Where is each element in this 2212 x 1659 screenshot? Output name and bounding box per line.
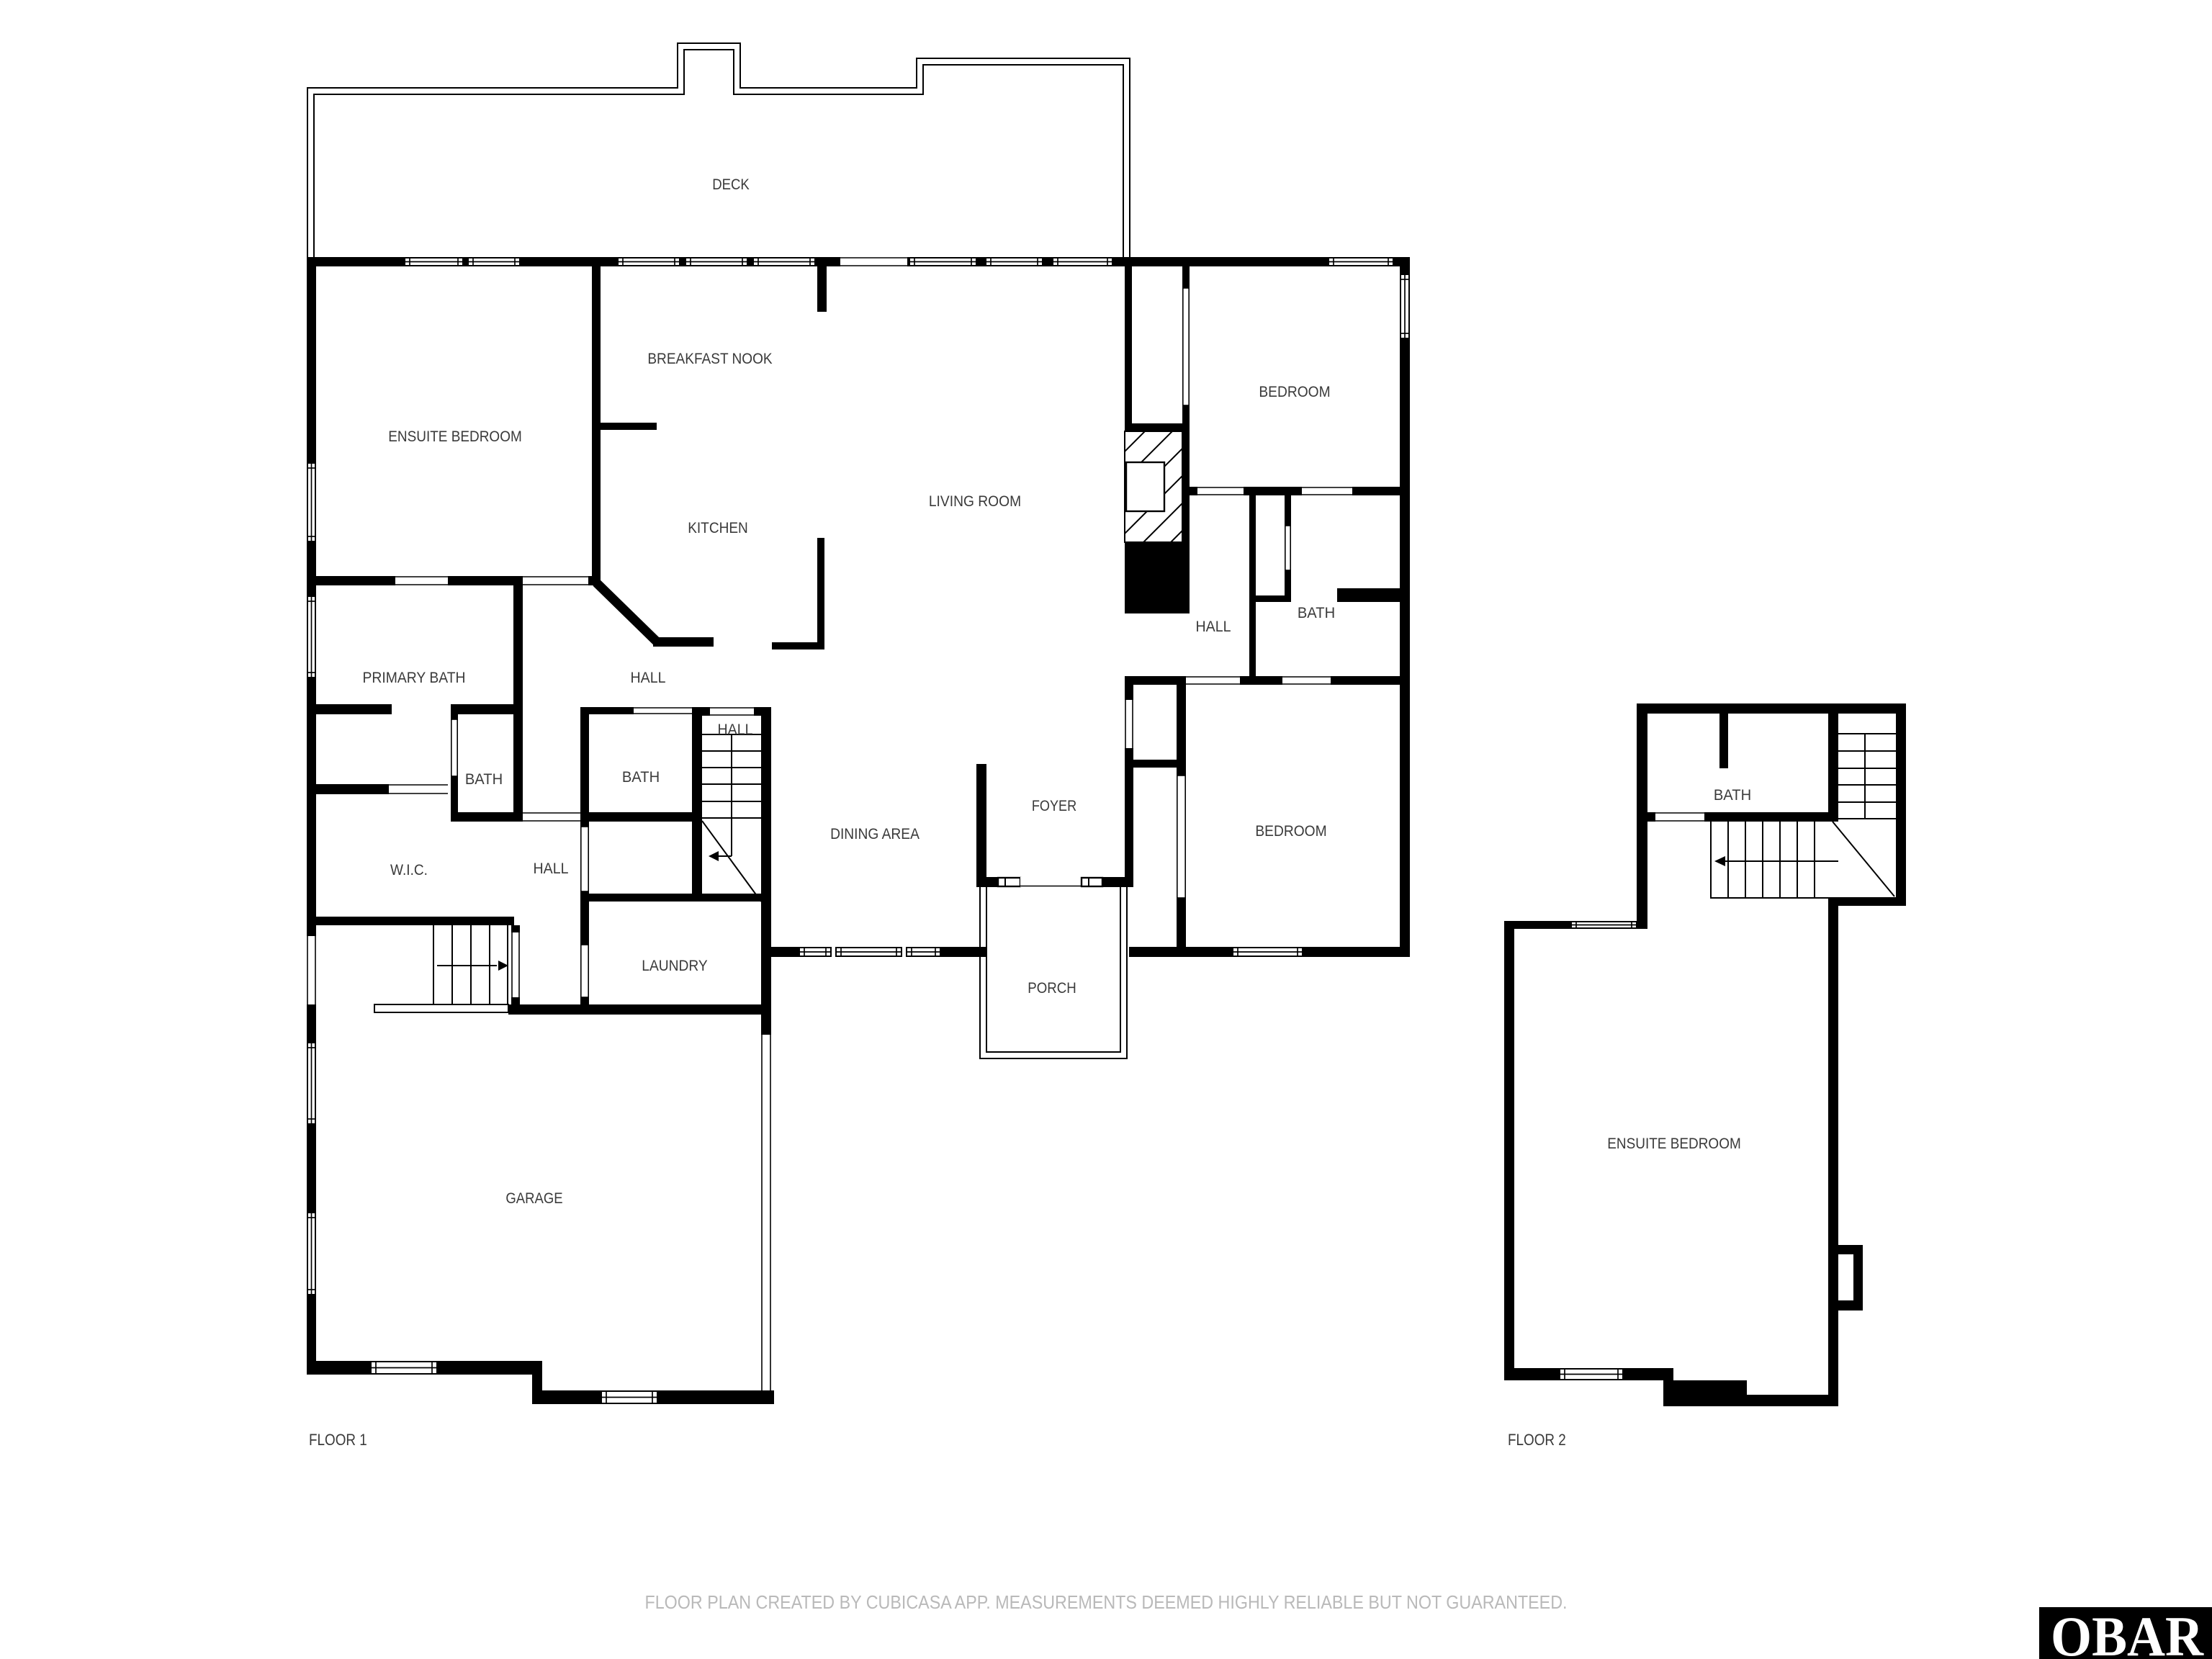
svg-text:DECK: DECK <box>712 176 750 193</box>
svg-text:ENSUITE BEDROOM: ENSUITE BEDROOM <box>388 428 522 445</box>
svg-text:BATH: BATH <box>622 769 660 786</box>
svg-text:FOYER: FOYER <box>1032 798 1076 814</box>
svg-text:BATH: BATH <box>1298 605 1335 621</box>
svg-text:FLOOR 2: FLOOR 2 <box>1508 1431 1566 1449</box>
svg-text:BEDROOM: BEDROOM <box>1259 384 1330 400</box>
svg-text:GARAGE: GARAGE <box>505 1190 562 1207</box>
svg-text:HALL: HALL <box>1196 619 1231 635</box>
svg-text:HALL: HALL <box>631 670 666 686</box>
svg-text:BATH: BATH <box>465 771 503 788</box>
svg-text:OBAR: OBAR <box>2051 1605 2205 1659</box>
svg-text:BREAKFAST NOOK: BREAKFAST NOOK <box>647 351 772 367</box>
svg-text:W.I.C.: W.I.C. <box>390 862 428 878</box>
svg-text:PRIMARY BATH: PRIMARY BATH <box>363 670 466 686</box>
svg-text:HALL: HALL <box>534 860 569 877</box>
svg-text:ENSUITE BEDROOM: ENSUITE BEDROOM <box>1607 1136 1741 1152</box>
svg-text:HALL: HALL <box>718 721 753 738</box>
svg-text:LAUNDRY: LAUNDRY <box>642 958 708 974</box>
svg-text:BEDROOM: BEDROOM <box>1255 823 1326 840</box>
svg-text:FLOOR PLAN CREATED BY CUBICASA: FLOOR PLAN CREATED BY CUBICASA APP. MEAS… <box>645 1591 1568 1613</box>
svg-text:KITCHEN: KITCHEN <box>688 520 748 536</box>
svg-text:DINING AREA: DINING AREA <box>830 826 920 842</box>
svg-text:BATH: BATH <box>1714 787 1751 804</box>
svg-text:FLOOR 1: FLOOR 1 <box>309 1431 367 1449</box>
svg-text:PORCH: PORCH <box>1028 980 1076 997</box>
svg-text:LIVING ROOM: LIVING ROOM <box>929 493 1021 510</box>
